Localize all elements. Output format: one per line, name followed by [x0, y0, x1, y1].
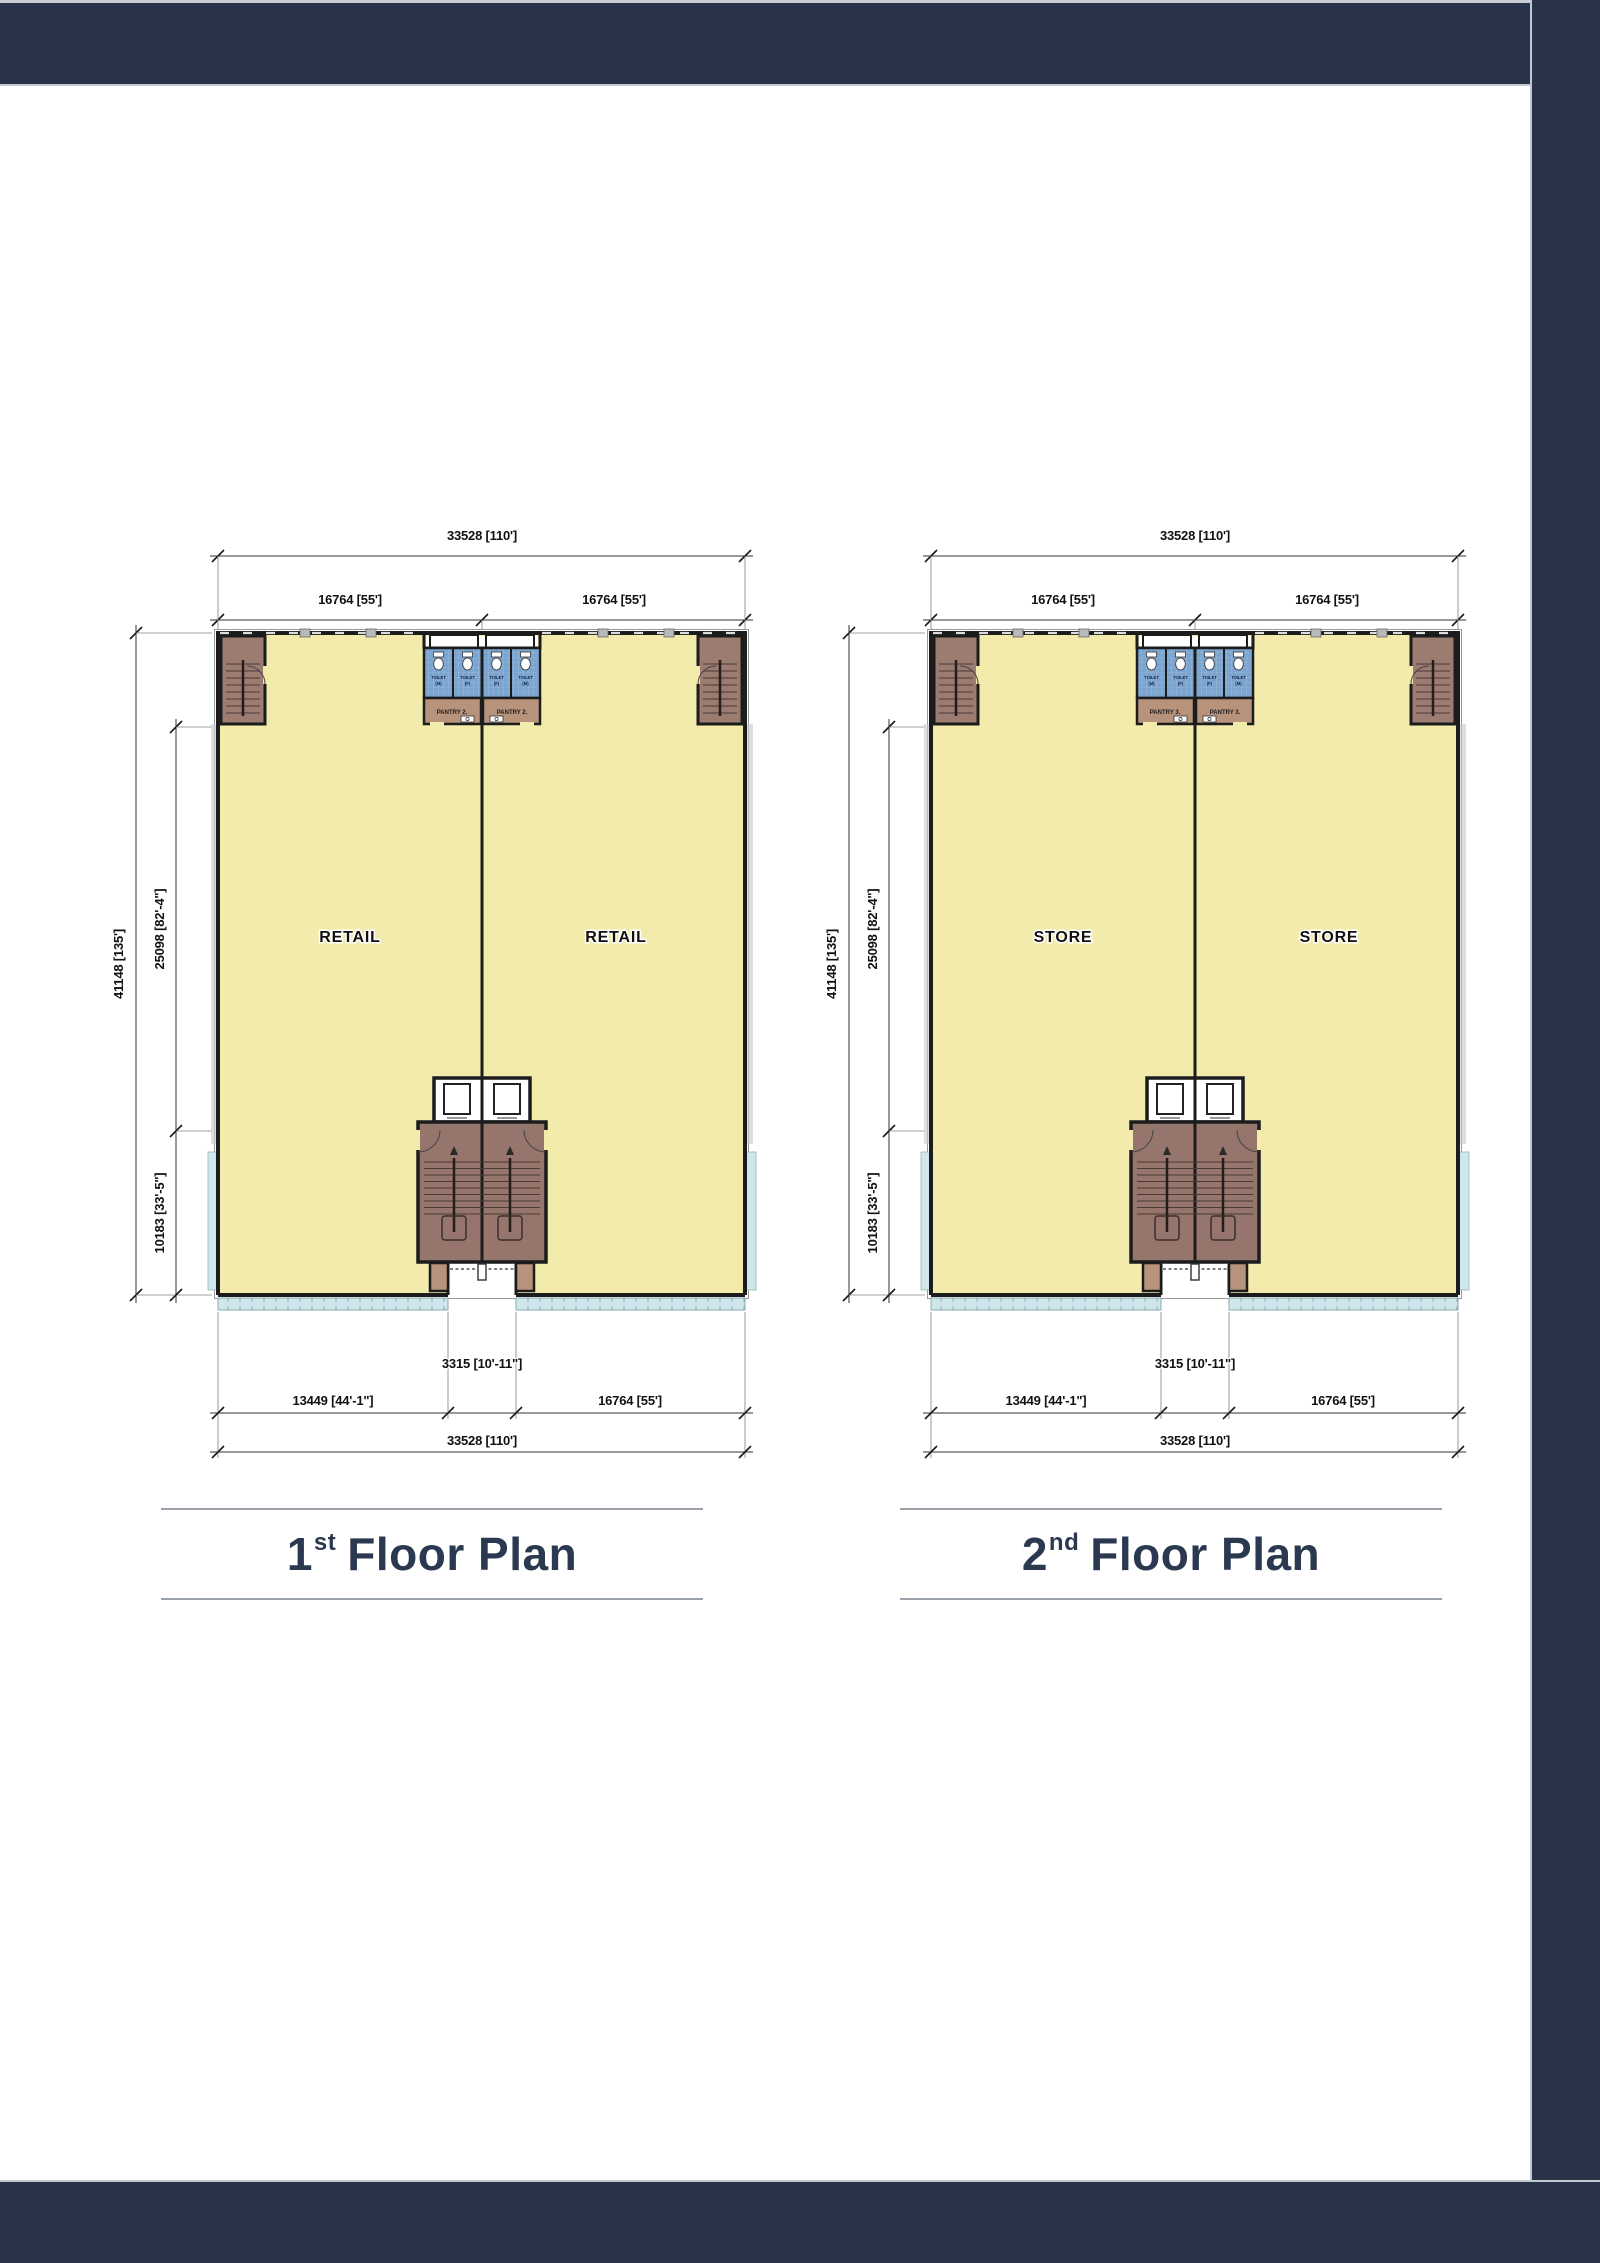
toilet-block: TOILET (M) TOILET (F) TOILET (F) TOILET …: [424, 648, 540, 698]
title-rule-top: [900, 1508, 1442, 1510]
toilet-icon: [463, 658, 473, 670]
unit-label-left: RETAIL: [319, 929, 380, 946]
corner-stairwell-left: [221, 636, 265, 724]
toilet-label: TOILET: [1202, 675, 1217, 680]
dim-bottom-right-unit: 16764 [55']: [598, 1393, 662, 1408]
dim-side-lower: 10183 [33'-5"]: [152, 1173, 167, 1254]
floor-plan-drawing: 33528 [110'] 16764 [55'] 16764 [55'] 411…: [791, 512, 1491, 1462]
toilet-gender-label: (M): [1235, 681, 1242, 686]
title-ordinal: st: [314, 1529, 336, 1556]
title-rule-top: [161, 1508, 703, 1510]
dim-bottom-overall: 33528 [110']: [447, 1433, 517, 1448]
corner-stairwell-left: [934, 636, 978, 724]
page-frame-bottom-band: [0, 2180, 1600, 2263]
dim-top-right-unit: 16764 [55']: [582, 592, 646, 607]
dim-bottom-overall: 33528 [110']: [1160, 1433, 1230, 1448]
dim-side-upper: 25098 [82'-4"]: [152, 889, 167, 970]
dimensions-top: 33528 [110'] 16764 [55'] 16764 [55']: [923, 528, 1466, 629]
title-block-2nd-floor: 2ndFloor Plan: [900, 1508, 1442, 1600]
dim-top-left-unit: 16764 [55']: [318, 592, 382, 607]
stair-elevator-core: [1131, 1078, 1259, 1291]
dimensions-top: 33528 [110'] 16764 [55'] 16764 [55']: [210, 528, 753, 629]
dim-top-right-unit: 16764 [55']: [1295, 592, 1359, 607]
toilet-gender-label: (M): [435, 681, 442, 686]
dim-side-overall: 41148 [135']: [824, 929, 839, 999]
entrance-side-tab-left: [430, 1263, 448, 1291]
toilet-icon: [1205, 658, 1215, 670]
entrance-center-post: [1191, 1264, 1199, 1280]
window-sill-right: [1459, 1152, 1469, 1290]
pantry-label-right: PANTRY 3.: [1210, 710, 1241, 716]
corner-stairwell-right: [1411, 636, 1455, 724]
dim-bottom-recess: 3315 [10'-11"]: [1155, 1356, 1235, 1371]
toilet-icon: [492, 658, 502, 670]
dimensions-left: 41148 [135'] 25098 [82'-4"] 10183 [33'-5…: [824, 625, 925, 1303]
title-block-1st-floor: 1stFloor Plan: [161, 1508, 703, 1600]
sink-icon: [490, 716, 503, 722]
toilet-label: TOILET: [518, 675, 533, 680]
toilet-gender-label: (F): [1207, 681, 1213, 686]
corner-stairwell-right: [698, 636, 742, 724]
service-duct-left: [1143, 635, 1191, 648]
pantry-rooms: PANTRY 3. PANTRY 3.: [1137, 698, 1253, 724]
sink-icon: [1203, 716, 1216, 722]
toilet-gender-label: (F): [494, 681, 500, 686]
unit-label-right: RETAIL: [585, 929, 646, 946]
entrance-side-tab-left: [1143, 1263, 1161, 1291]
title-ordinal: nd: [1049, 1529, 1079, 1556]
toilet-icon: [1176, 658, 1186, 670]
dim-bottom-recess: 3315 [10'-11"]: [442, 1356, 522, 1371]
floor-plan-1st: 33528 [110'] 16764 [55'] 16764 [55'] 411…: [78, 512, 778, 1462]
toilet-label: TOILET: [1231, 675, 1246, 680]
window-sill-bottom-left: [931, 1298, 1161, 1310]
dim-top-overall: 33528 [110']: [1160, 528, 1230, 543]
unit-label-left: STORE: [1034, 929, 1093, 946]
stair-elevator-core: [418, 1078, 546, 1291]
toilet-icon: [521, 658, 531, 670]
pantry-label-right: PANTRY 2.: [497, 710, 528, 716]
toilet-gender-label: (M): [522, 681, 529, 686]
dimensions-left: 41148 [135'] 25098 [82'-4"] 10183 [33'-5…: [111, 625, 212, 1303]
toilet-gender-label: (M): [1148, 681, 1155, 686]
dim-bottom-right-unit: 16764 [55']: [1311, 1393, 1375, 1408]
sink-icon: [1174, 716, 1187, 722]
service-duct-right: [1199, 635, 1247, 648]
pantry-label-left: PANTRY 2.: [437, 710, 468, 716]
toilet-gender-label: (F): [465, 681, 471, 686]
toilet-label: TOILET: [1144, 675, 1159, 680]
toilet-gender-label: (F): [1178, 681, 1184, 686]
pantry-label-left: PANTRY 3.: [1150, 710, 1181, 716]
unit-label-right: STORE: [1300, 929, 1359, 946]
sink-icon: [461, 716, 474, 722]
page-title-2nd-floor: 2ndFloor Plan: [1022, 1531, 1320, 1577]
window-sill-bottom-right: [1229, 1298, 1458, 1310]
dim-side-overall: 41148 [135']: [111, 929, 126, 999]
page-frame-right-band: [1530, 0, 1600, 2263]
elevator-car-right: [1207, 1084, 1233, 1114]
toilet-icon: [1147, 658, 1157, 670]
toilet-icon: [1234, 658, 1244, 670]
pantry-rooms: PANTRY 2. PANTRY 2.: [424, 698, 540, 724]
window-sill-right: [746, 1152, 756, 1290]
service-duct-left: [430, 635, 478, 648]
page: { "page": { "background": "#ffffff" }, "…: [0, 0, 1600, 2263]
page-title-1st-floor: 1stFloor Plan: [287, 1531, 577, 1577]
title-rest: Floor Plan: [1090, 1528, 1320, 1580]
title-number: 1: [287, 1528, 313, 1580]
toilet-label: TOILET: [1173, 675, 1188, 680]
dim-side-lower: 10183 [33'-5"]: [865, 1173, 880, 1254]
window-sill-bottom-right: [516, 1298, 745, 1310]
title-rest: Floor Plan: [347, 1528, 577, 1580]
floor-plan-drawing: 33528 [110'] 16764 [55'] 16764 [55'] 411…: [78, 512, 778, 1462]
title-number: 2: [1022, 1528, 1048, 1580]
toilet-label: TOILET: [460, 675, 475, 680]
entrance-center-post: [478, 1264, 486, 1280]
dimensions-bottom: 3315 [10'-11"] 13449 [44'-1"] 16764 [55'…: [210, 1312, 753, 1458]
floor-plan-2nd: 33528 [110'] 16764 [55'] 16764 [55'] 411…: [791, 512, 1491, 1462]
dim-bottom-left-unit: 13449 [44'-1"]: [1006, 1393, 1087, 1408]
window-sill-bottom-left: [218, 1298, 448, 1310]
dim-top-overall: 33528 [110']: [447, 528, 517, 543]
dim-top-left-unit: 16764 [55']: [1031, 592, 1095, 607]
toilet-label: TOILET: [431, 675, 446, 680]
service-duct-right: [486, 635, 534, 648]
entrance-side-tab-right: [1229, 1263, 1247, 1291]
page-frame-top-band: [0, 0, 1600, 86]
elevator-car-right: [494, 1084, 520, 1114]
elevator-car-left: [1157, 1084, 1183, 1114]
title-rule-bottom: [900, 1598, 1442, 1600]
elevator-car-left: [444, 1084, 470, 1114]
title-rule-bottom: [161, 1598, 703, 1600]
toilet-block: TOILET (M) TOILET (F) TOILET (F) TOILET …: [1137, 648, 1253, 698]
dim-side-upper: 25098 [82'-4"]: [865, 889, 880, 970]
entrance-side-tab-right: [516, 1263, 534, 1291]
dim-bottom-left-unit: 13449 [44'-1"]: [293, 1393, 374, 1408]
toilet-icon: [434, 658, 444, 670]
dimensions-bottom: 3315 [10'-11"] 13449 [44'-1"] 16764 [55'…: [923, 1312, 1466, 1458]
toilet-label: TOILET: [489, 675, 504, 680]
